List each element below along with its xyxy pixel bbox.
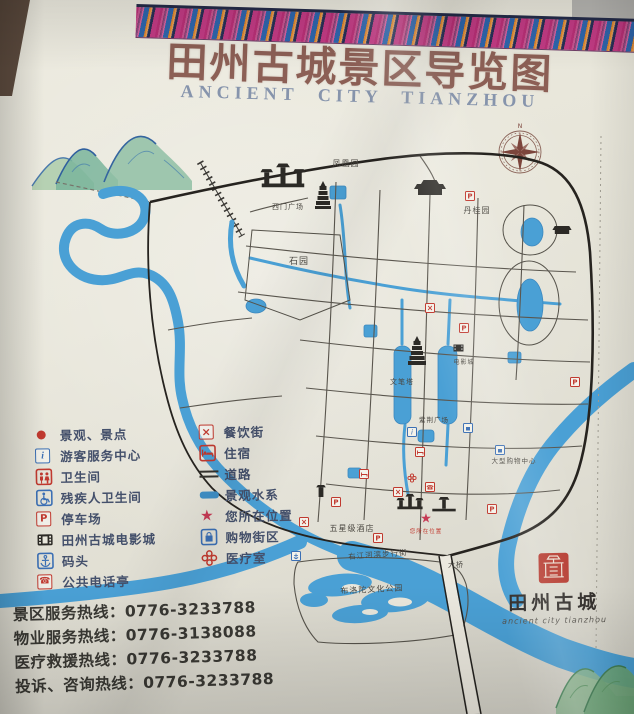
small-hall <box>552 226 571 234</box>
brand-seal-block: 田州古城 ancient city tianzhou <box>491 550 616 626</box>
legend-item-label: 残疾人卫生间 <box>61 487 142 507</box>
dining-map-marker: × <box>426 304 435 313</box>
svg-text:P: P <box>489 506 494 514</box>
map-place-label: 凤凰园 <box>333 159 360 168</box>
parking-map-marker: P <box>488 505 497 514</box>
bridge <box>439 555 481 714</box>
svg-text:i: i <box>411 429 413 437</box>
legend-item-label: 景观、景点 <box>60 424 128 444</box>
svg-text:☎: ☎ <box>426 485 434 492</box>
wc-icon <box>35 468 54 485</box>
legend-item: i 游客服务中心 <box>35 445 187 465</box>
hotline-label: 投诉、咨询热线： <box>15 674 144 696</box>
legend-item-label: 购物街区 <box>225 526 279 546</box>
lodging-icon <box>199 444 218 461</box>
map-place-label: 文笔塔 <box>390 377 414 386</box>
mountains-illustration-bottom-right <box>550 616 634 714</box>
lodging-map-marker <box>360 470 369 479</box>
phone-icon: ☎ <box>37 573 56 590</box>
map-place-label: 西门广场 <box>272 202 304 211</box>
road-icon <box>199 465 218 482</box>
dining-map-marker: × <box>394 488 403 497</box>
legend-item: 购物街区 <box>200 526 328 545</box>
legend-column-left: 景观、景点 i 游客服务中心 卫生间 残疾人卫生间 P <box>35 424 190 591</box>
svg-text:P: P <box>333 499 338 507</box>
legend-item: P 停车场 <box>36 508 188 528</box>
legend-item-label: 景观水系 <box>225 484 279 504</box>
legend-item-label: 住宿 <box>224 443 251 462</box>
legend-item: ☎ 公共电话亭 <box>37 571 189 591</box>
svg-text:×: × <box>395 488 401 497</box>
parking-map-marker: P <box>466 192 475 201</box>
water-icon <box>200 486 219 503</box>
info-icon: i <box>35 447 54 464</box>
palace-building <box>414 180 446 195</box>
map-place-label: 大型购物中心 <box>492 456 537 465</box>
map-place-label: 大桥 <box>448 560 464 569</box>
svg-text:P: P <box>572 379 577 387</box>
medical-map-marker <box>408 474 416 482</box>
parking-map-marker: P <box>332 498 341 507</box>
red-seal-icon <box>535 551 572 586</box>
you-are-here-map-marker: ★ <box>420 512 432 527</box>
info-map-marker: i <box>408 428 417 437</box>
star-icon: ★ <box>200 507 219 524</box>
west-gate-building <box>261 164 306 188</box>
hotline-label: 景区服务热线： <box>13 603 126 625</box>
hotline-number: 0776-3233788 <box>143 670 275 692</box>
legend-item: 田州古城电影城 <box>36 529 188 549</box>
parking-map-marker: P <box>374 534 383 543</box>
svg-text:★: ★ <box>420 512 432 527</box>
svg-text:P: P <box>375 535 380 543</box>
parking-map-marker: P <box>460 324 469 333</box>
shopping-map-marker <box>464 424 473 433</box>
legend-item-label: 医疗室 <box>226 548 267 568</box>
map-place-label: 丹桂园 <box>464 205 491 215</box>
hotline-list: 景区服务热线：0776-3233788 物业服务热线：0776-3138088 … <box>13 595 275 697</box>
cinema-map-marker <box>454 345 464 352</box>
parking-map-marker: P <box>571 378 580 387</box>
pagoda-small <box>315 181 331 209</box>
map-place-label: 您所在位置 <box>410 527 443 535</box>
legend-item-label: 您所在位置 <box>225 505 293 525</box>
hotline-label: 医疗救援热线： <box>14 651 127 673</box>
legend-item-label: 卫生间 <box>60 466 101 486</box>
dot-icon <box>35 426 54 443</box>
legend-item-label: 田州古城电影城 <box>61 528 156 549</box>
hotline-label: 物业服务热线： <box>13 627 126 649</box>
wharf-icon <box>37 552 56 569</box>
legend-item: ★ 您所在位置 <box>200 505 328 524</box>
railway-hatch <box>200 162 242 236</box>
legend-item-label: 码头 <box>62 551 89 570</box>
legend-item: 景观、景点 <box>35 424 187 444</box>
dining-icon: × <box>199 423 218 440</box>
map-place-label: 电影城 <box>453 358 474 366</box>
legend-item-label: 游客服务中心 <box>60 445 141 465</box>
svg-text:P: P <box>467 193 472 201</box>
hotline-number: 0776-3233788 <box>126 646 258 668</box>
wheelchair-icon <box>36 489 55 506</box>
south-gate-2 <box>432 497 455 511</box>
legend-item: 码头 <box>37 550 189 570</box>
legend-column-right: × 餐饮街 住宿 道路 景观水系 <box>199 421 330 587</box>
shopping-map-marker <box>496 446 505 455</box>
parking-icon: P <box>36 510 55 527</box>
legend-item: × 餐饮街 <box>199 421 327 440</box>
shopping-icon <box>200 528 219 545</box>
lodging-map-marker <box>416 448 425 457</box>
svg-text:P: P <box>461 325 466 333</box>
legend-item: 卫生间 <box>35 466 187 486</box>
legend-item-label: 公共电话亭 <box>62 571 130 591</box>
map-place-label: 石园 <box>289 256 309 267</box>
map-legend: 景观、景点 i 游客服务中心 卫生间 残疾人卫生间 P <box>35 421 330 590</box>
medical-icon <box>201 549 220 566</box>
cinema-icon <box>36 531 55 548</box>
legend-item: 残疾人卫生间 <box>36 487 188 507</box>
legend-item-label: 停车场 <box>61 508 102 528</box>
map-place-label: 紫荆广场 <box>419 415 449 424</box>
legend-item: 景观水系 <box>200 484 328 503</box>
legend-item: 医疗室 <box>201 547 329 566</box>
svg-text:×: × <box>427 304 433 313</box>
legend-item: 道路 <box>199 463 327 482</box>
legend-item-label: 道路 <box>224 464 251 483</box>
legend-item-label: 餐饮街 <box>224 422 265 442</box>
legend-item: 住宿 <box>199 442 327 461</box>
hotline-number: 0776-3138088 <box>125 622 257 644</box>
map-place-label: 五星级酒店 <box>330 523 375 533</box>
photo-of-map-sign: 田州古城景区导览图 ANCIENT CITY TIANZHOU <box>0 0 634 714</box>
phone-map-marker: ☎ <box>426 483 435 492</box>
hotline-number: 0776-3233788 <box>125 598 257 620</box>
brand-name: 田州古城 <box>492 587 616 616</box>
